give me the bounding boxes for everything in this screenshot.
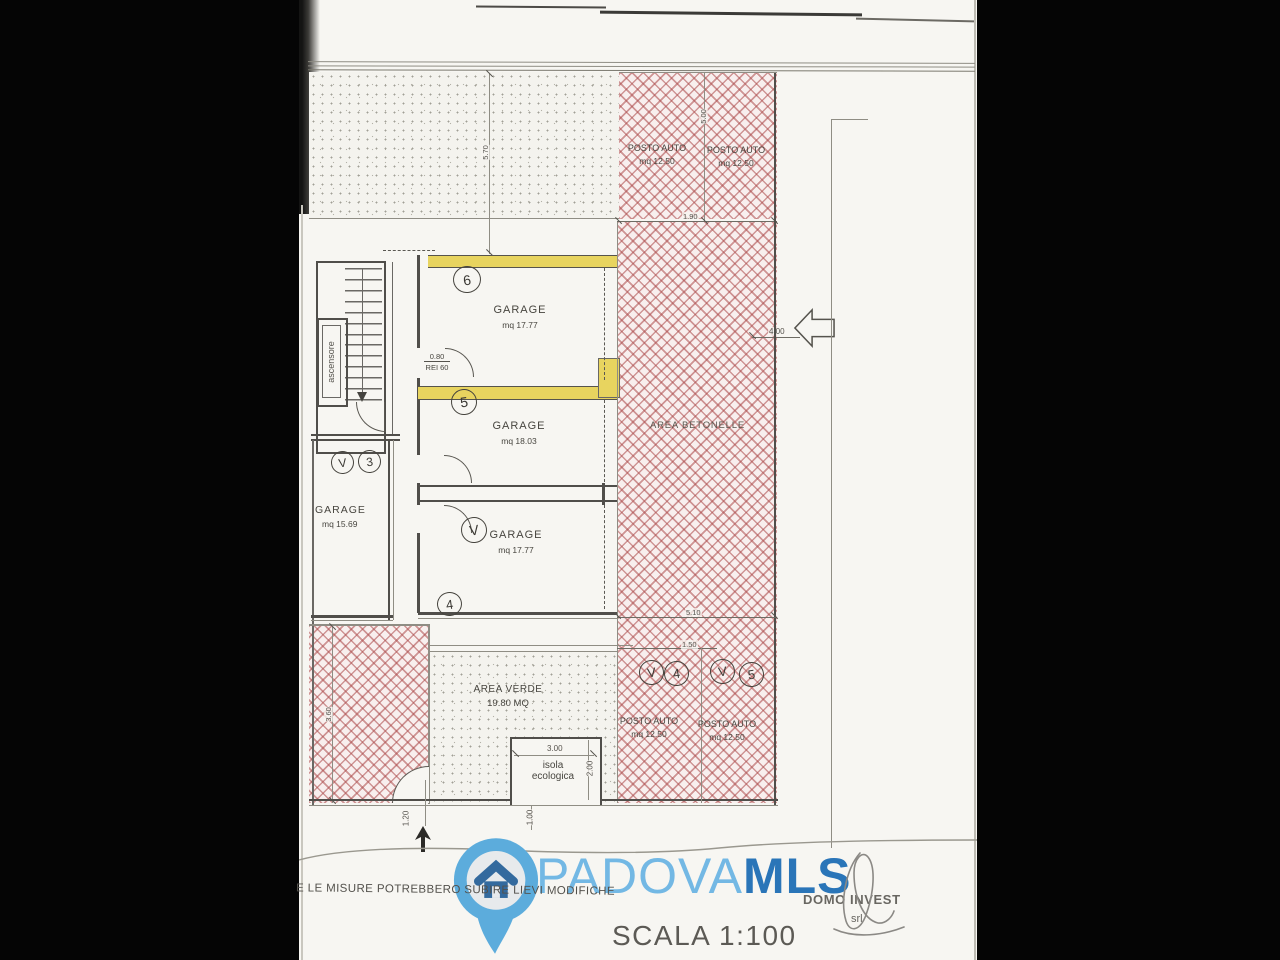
dimension-label: 5.00 bbox=[699, 109, 708, 124]
isola-label-line2: ecologica bbox=[520, 771, 586, 782]
highlighted-wall bbox=[418, 386, 618, 400]
parking-label: POSTO AUTO bbox=[622, 143, 692, 153]
wall-segment bbox=[311, 439, 400, 441]
dashed-boundary bbox=[383, 250, 435, 251]
door-leaf bbox=[384, 402, 385, 432]
gravel-bottom-line bbox=[309, 218, 619, 219]
dimension-line bbox=[514, 755, 594, 756]
garage-door-dashed bbox=[604, 505, 605, 609]
parking-area-label: mq 12.50 bbox=[701, 158, 771, 168]
entry-direction-arrow-icon bbox=[793, 306, 835, 350]
dimension-line bbox=[617, 221, 777, 222]
garage-door-dashed bbox=[604, 400, 605, 482]
area-label: AREA VERDE bbox=[468, 684, 548, 695]
dimension-label: 1.20 bbox=[401, 811, 410, 827]
floor-plan-scan: 5.70 5.00 1.90 ascensore V 3 GARAGE mq 1… bbox=[0, 0, 1280, 960]
dimension-label: 1.50 bbox=[681, 640, 698, 649]
wall-segment bbox=[309, 624, 430, 626]
room-area-label: mq 17.77 bbox=[476, 545, 556, 555]
room-label: GARAGE bbox=[479, 420, 559, 432]
wall-segment bbox=[388, 440, 390, 620]
wall-segment bbox=[418, 485, 618, 487]
dimension-label: 4.00 bbox=[768, 327, 786, 336]
stair-center-line bbox=[362, 268, 363, 392]
dimension-label: 5.10 bbox=[685, 608, 702, 617]
dimension-label: 1.00 bbox=[525, 810, 534, 826]
wall-segment bbox=[417, 533, 420, 613]
area-size-label: 19.80 MQ bbox=[468, 698, 548, 709]
dimension-line bbox=[617, 617, 777, 618]
room-area-label: mq 15.69 bbox=[322, 519, 357, 529]
door-width-label: 0.80 bbox=[424, 352, 450, 362]
dimension-label: 1.90 bbox=[682, 212, 699, 221]
wall-segment bbox=[418, 618, 618, 619]
dimension-line bbox=[425, 780, 426, 826]
wall-segment bbox=[774, 73, 776, 805]
room-area-label: mq 17.77 bbox=[480, 320, 560, 330]
wall-segment bbox=[309, 805, 778, 806]
gravel-area-top bbox=[309, 72, 619, 218]
parking-label: POSTO AUTO bbox=[614, 716, 684, 726]
wall-segment bbox=[312, 440, 314, 805]
signature bbox=[826, 843, 912, 947]
parcel-boundary-line bbox=[831, 120, 832, 848]
parking-area-label: mq 12.50 bbox=[622, 156, 692, 166]
page-right-edge bbox=[974, 0, 976, 960]
stair-treads bbox=[345, 268, 382, 338]
stair-direction-arrow-icon bbox=[357, 392, 367, 402]
parking-area-label: mq 12.50 bbox=[614, 729, 684, 739]
wall-segment bbox=[311, 620, 393, 621]
parking-area-label: mq 12.50 bbox=[692, 732, 762, 742]
dimension-line bbox=[489, 74, 490, 254]
isola-label: isola ecologica bbox=[520, 760, 586, 782]
garage-door-dashed bbox=[604, 268, 605, 380]
wall-segment bbox=[393, 440, 394, 620]
parcel-boundary-line bbox=[831, 119, 868, 120]
dimension-label: 3.00 bbox=[546, 744, 564, 753]
isola-label-line1: isola bbox=[520, 760, 586, 771]
scale-label: SCALA 1:100 bbox=[612, 920, 797, 952]
room-label: GARAGE bbox=[476, 529, 556, 541]
wall-segment bbox=[392, 262, 393, 434]
room-label: GARAGE bbox=[315, 504, 366, 516]
parking-label: POSTO AUTO bbox=[701, 145, 771, 155]
dimension-label: 3.60 bbox=[324, 707, 333, 722]
hatch-top-line bbox=[619, 72, 777, 73]
area-label: AREA BETONELLE bbox=[650, 420, 745, 431]
parking-label: POSTO AUTO bbox=[692, 719, 762, 729]
wall-segment bbox=[311, 434, 400, 436]
elevator-label: ascensore bbox=[326, 327, 336, 397]
room-area-label: mq 18.03 bbox=[479, 436, 559, 446]
room-label: GARAGE bbox=[480, 304, 560, 316]
wall-segment bbox=[602, 483, 605, 505]
wall-segment bbox=[417, 255, 420, 348]
wall-segment bbox=[418, 500, 618, 502]
door-rating-label: REI 60 bbox=[424, 363, 450, 372]
wall-segment bbox=[430, 651, 618, 652]
dimension-label: 5.70 bbox=[481, 145, 490, 160]
highlighted-wall bbox=[428, 255, 618, 268]
wall-segment bbox=[430, 645, 633, 646]
wall-segment bbox=[311, 615, 393, 618]
dimension-label: 2.00 bbox=[585, 761, 594, 777]
